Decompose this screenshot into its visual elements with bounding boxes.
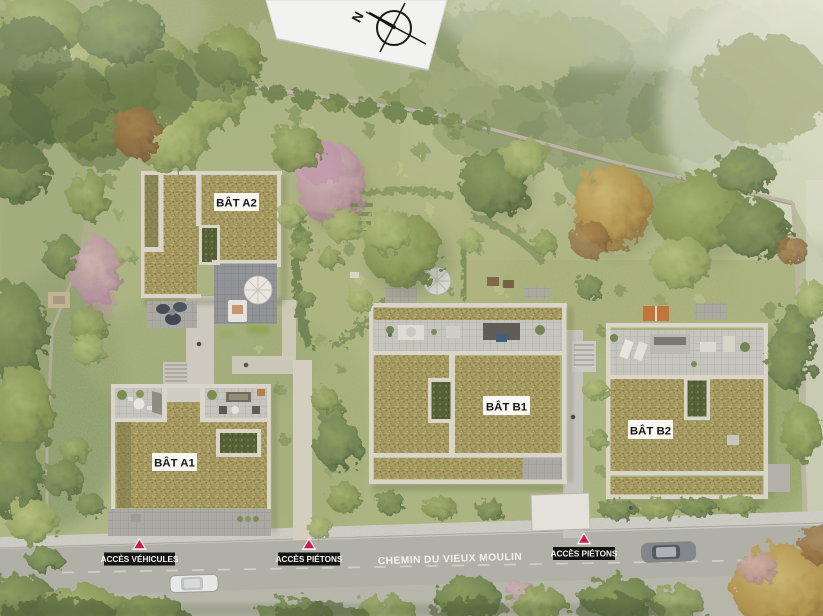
svg-text:BÂT A2: BÂT A2 [216,197,257,210]
svg-text:ACCÈS PIÉTONS: ACCÈS PIÉTONS [551,549,618,559]
svg-text:BÂT A1: BÂT A1 [154,457,195,470]
svg-text:ACCÈS PIÉTONS: ACCÈS PIÉTONS [276,554,343,564]
svg-text:BÂT B2: BÂT B2 [630,425,671,438]
svg-text:ACCÈS VÉHICULES: ACCÈS VÉHICULES [101,554,179,564]
svg-text:BÂT B1: BÂT B1 [486,401,528,414]
